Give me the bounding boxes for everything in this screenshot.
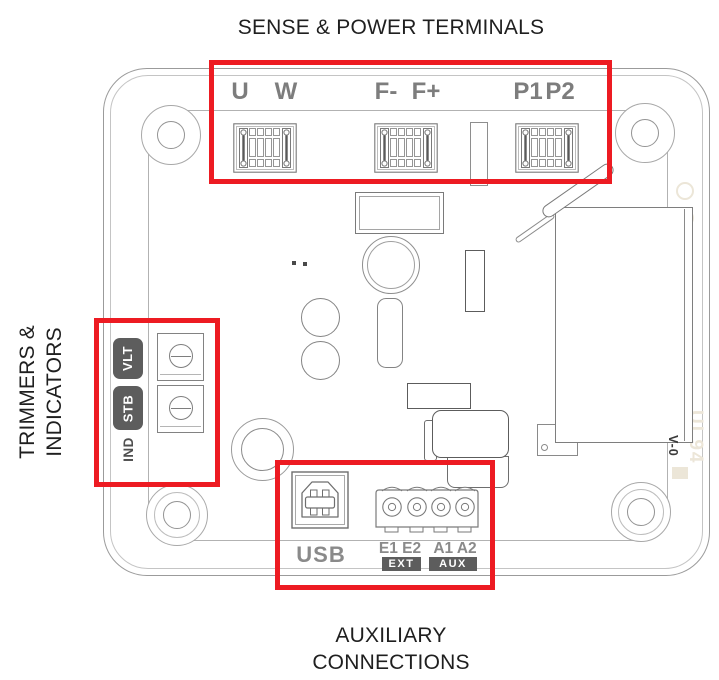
component-rounded-vertical: [377, 298, 403, 368]
ul-logo-ghost: [672, 467, 688, 479]
component-rect-lower: [407, 383, 471, 409]
caption-aux-line1: AUXILIARY: [41, 622, 719, 649]
transformer-edge-line: [684, 209, 685, 441]
caption-sense-power-terminals: SENSE & POWER TERMINALS: [41, 16, 719, 40]
terminal-label-u: U: [231, 78, 248, 106]
highlight-box-trimmers: [94, 318, 220, 487]
terminal-label-p2: P2: [545, 78, 574, 106]
capacitor-small-1: [301, 298, 340, 337]
caption-trimmers-line2: INDICATORS: [41, 282, 68, 502]
mounting-hole-top-left-bore: [157, 121, 185, 149]
terminal-label-f-minus: F-: [375, 78, 398, 106]
capacitor-small-2: [301, 341, 340, 380]
terminal-label-w: W: [275, 78, 298, 106]
caption-trimmers-line1: TRIMMERS &: [14, 282, 41, 502]
transformer-block: [555, 207, 693, 443]
usb-label: USB: [296, 542, 345, 568]
component-rect-top: [355, 192, 444, 234]
capacitor-large: [362, 236, 420, 294]
caption-trimmers-indicators: TRIMMERS & INDICATORS: [14, 282, 72, 502]
ce-mark-ghost-1: [676, 182, 694, 200]
flammability-rating-label: V-0: [666, 435, 680, 457]
component-rect-right: [465, 250, 485, 312]
terminal-label-f-plus: F+: [412, 78, 441, 106]
mounting-hole-top-right-bore: [631, 119, 659, 147]
board-diagram: SENSE & POWER TERMINALS TRIMMERS & INDIC…: [0, 0, 719, 680]
test-point-dot-1: [292, 261, 296, 265]
pin-labels-a1-a2: A1 A2: [433, 540, 476, 558]
badge-ext: EXT: [382, 557, 421, 571]
pin-labels-e1-e2: E1 E2: [379, 540, 421, 558]
mounting-hole-bottom-left-bore: [163, 501, 191, 529]
badge-aux: AUX: [429, 557, 477, 571]
caption-auxiliary-connections: AUXILIARY CONNECTIONS: [41, 622, 719, 676]
caption-aux-line2: CONNECTIONS: [41, 649, 719, 676]
relay-main-body: [432, 410, 509, 458]
terminal-label-p1: P1: [513, 78, 542, 106]
transformer-bracket-hole: [541, 444, 548, 451]
mounting-hole-bottom-right-bore: [627, 498, 655, 526]
test-point-dot-2: [303, 262, 307, 266]
